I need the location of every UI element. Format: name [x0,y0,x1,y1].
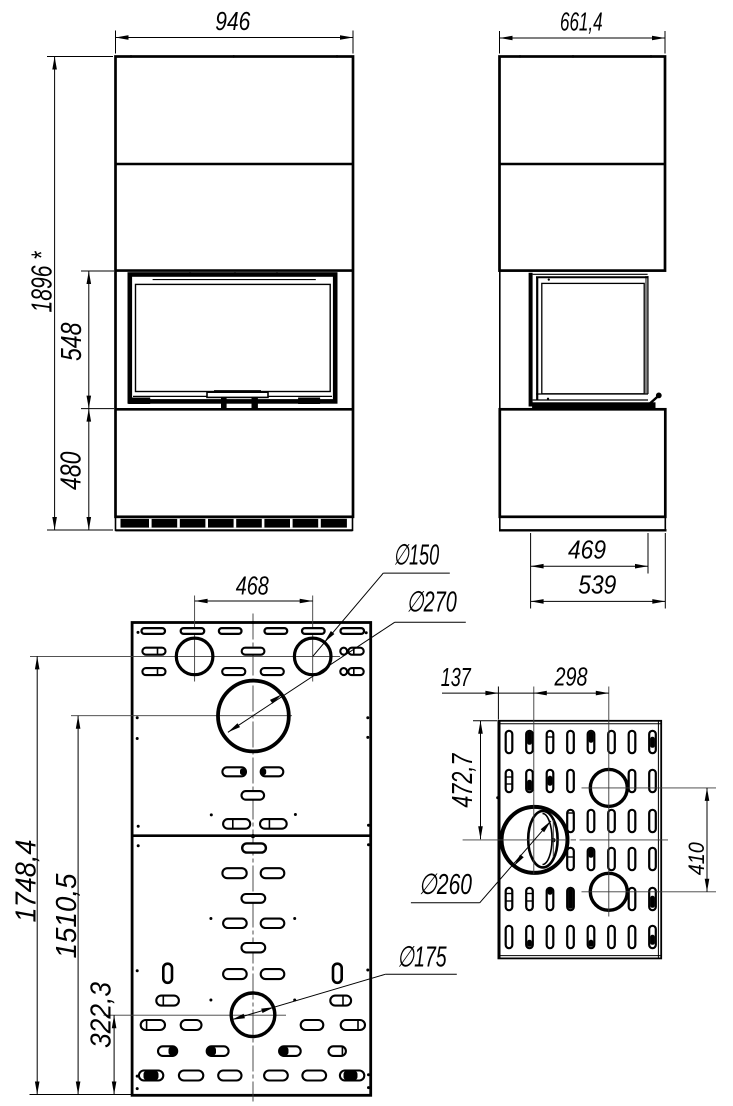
svg-text:539: 539 [578,570,616,600]
svg-text:468: 468 [236,571,269,601]
svg-text:∅150: ∅150 [393,540,439,572]
svg-text:480: 480 [56,452,88,490]
svg-text:1748,4: 1748,4 [10,840,42,923]
svg-text:1510,5: 1510,5 [51,873,83,958]
svg-text:∅270: ∅270 [406,587,457,619]
svg-text:∅175: ∅175 [397,942,447,974]
svg-text:298: 298 [554,662,588,692]
svg-text:322,3: 322,3 [85,982,117,1048]
svg-text:548: 548 [56,322,88,361]
svg-text:∅260: ∅260 [419,869,472,901]
svg-text:469: 469 [568,535,606,565]
svg-text:661,4: 661,4 [560,7,603,37]
svg-text:1896 *: 1896 * [27,251,59,313]
svg-text:946: 946 [215,6,250,36]
svg-text:410: 410 [684,842,709,876]
svg-text:137: 137 [441,662,472,692]
svg-text:472,7: 472,7 [447,753,479,808]
